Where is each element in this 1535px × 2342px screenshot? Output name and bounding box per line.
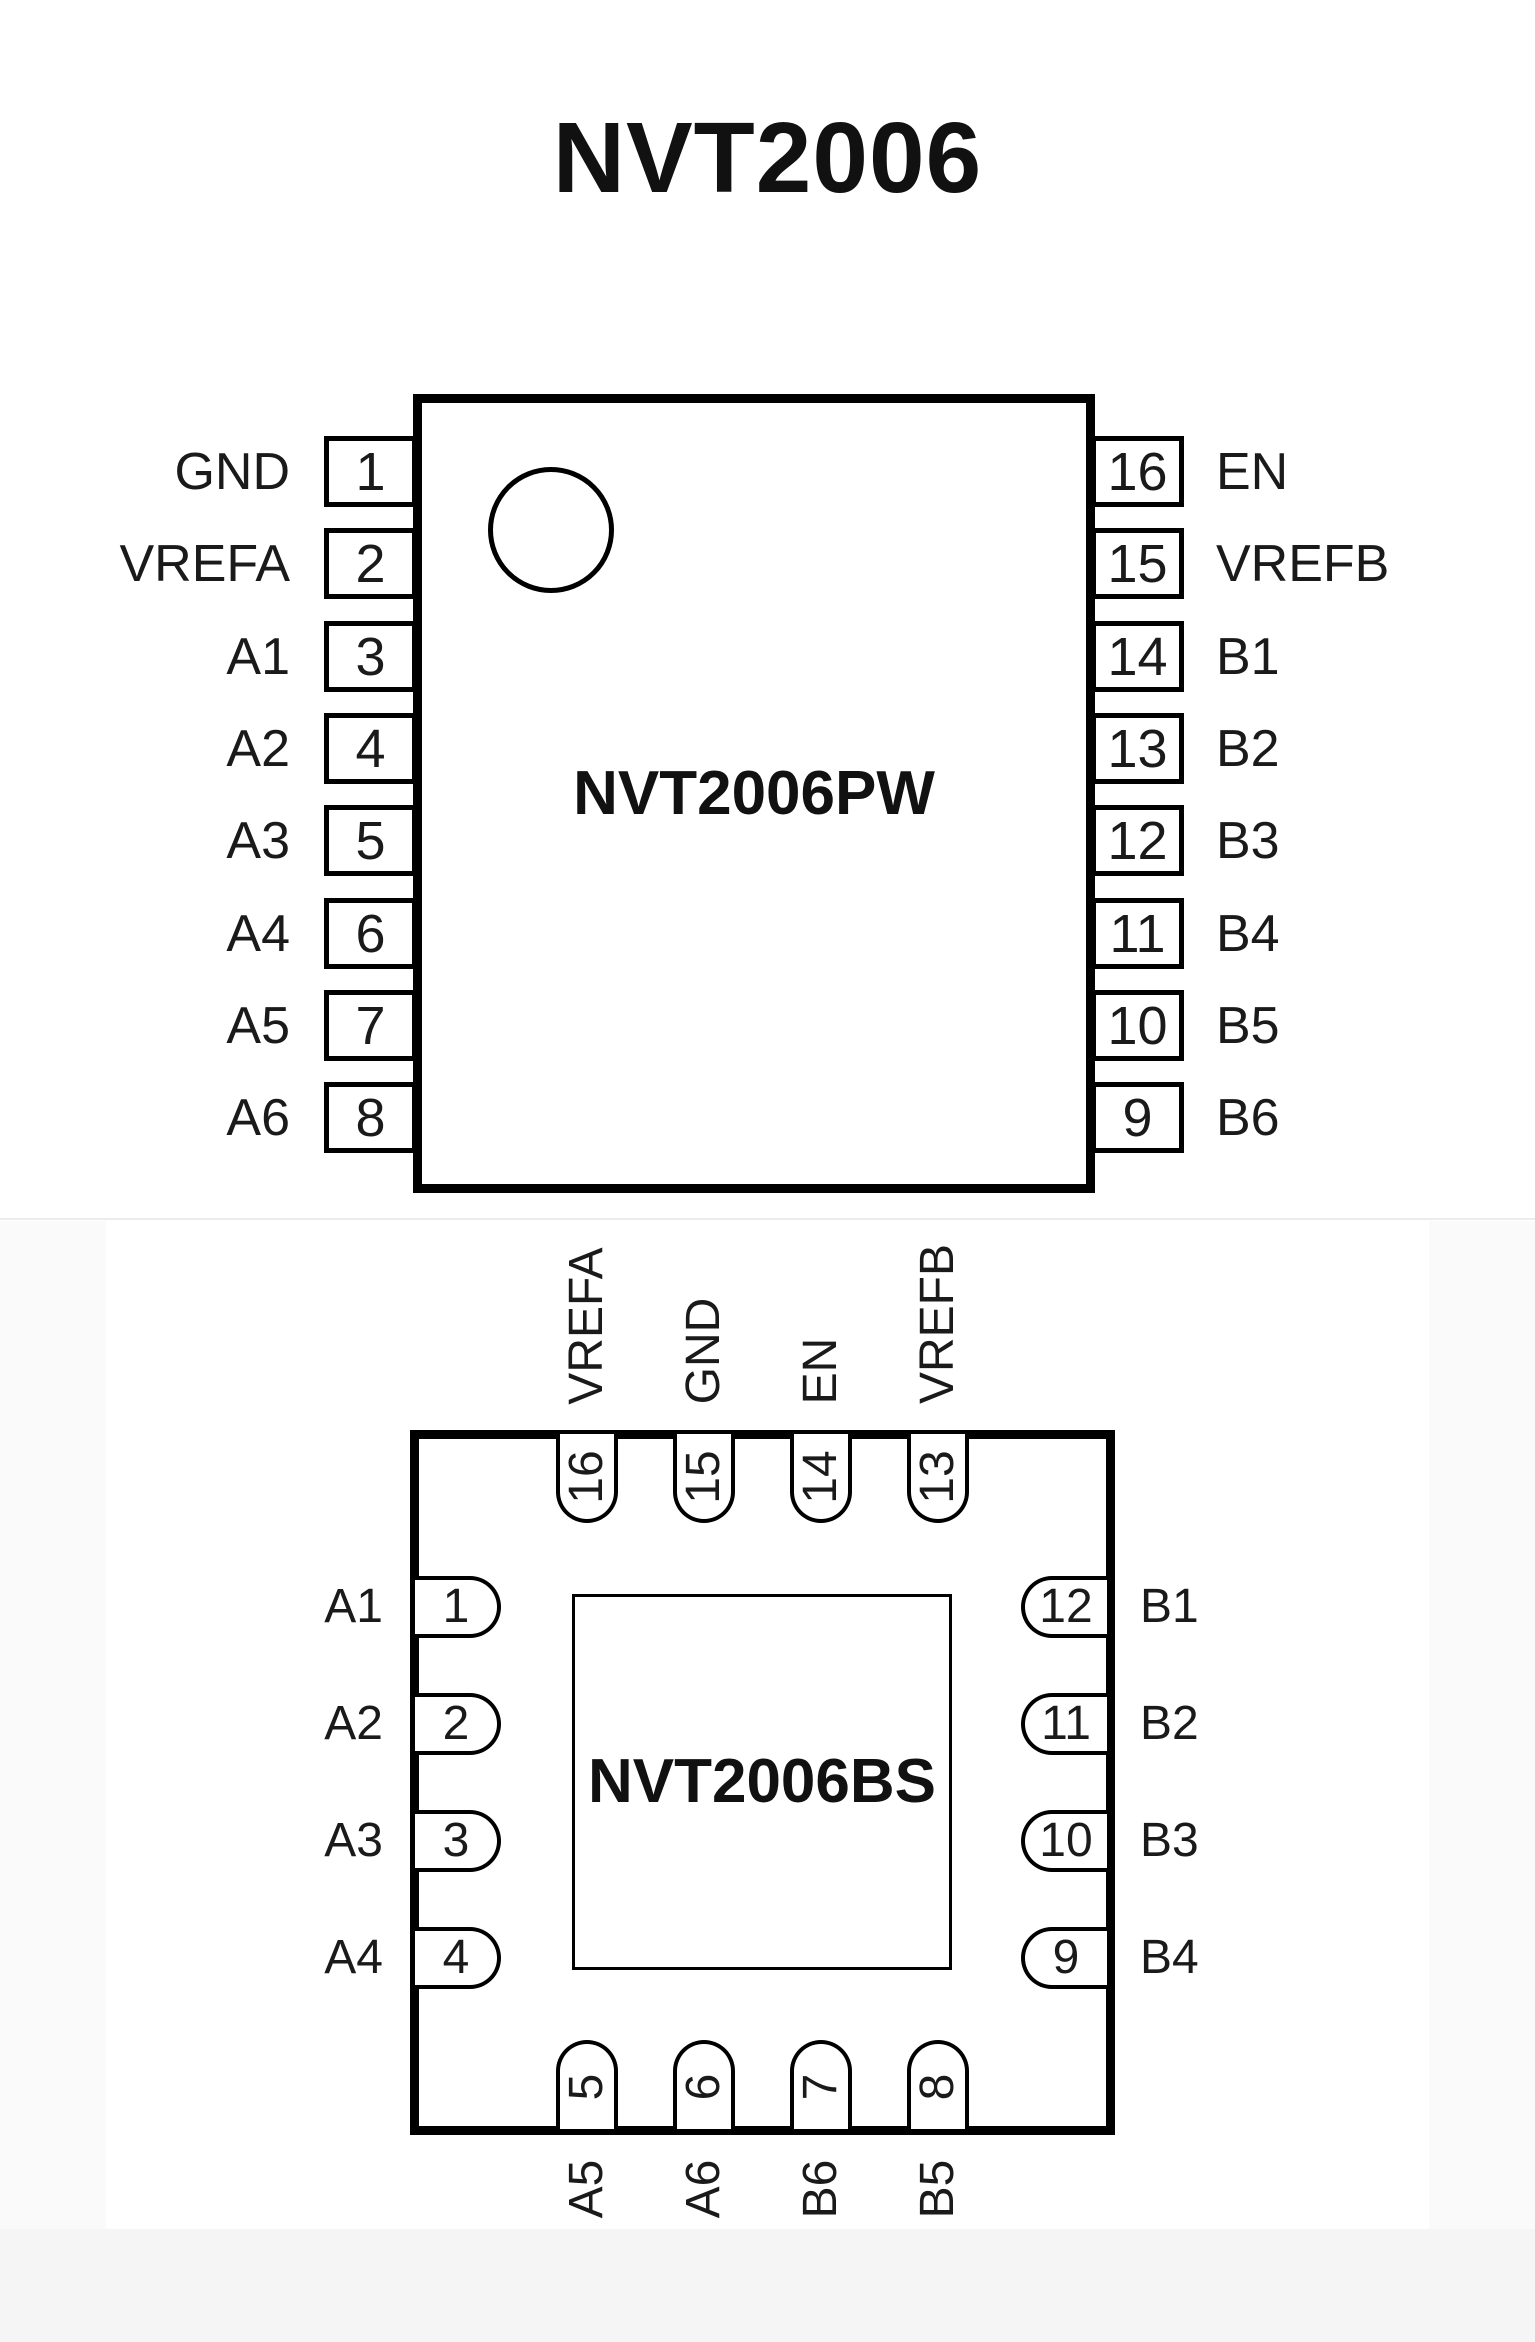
qfn-pin-1-label: A1	[324, 1576, 383, 1638]
tssop-pin-10-box: 10	[1091, 990, 1184, 1061]
datasheet-page: NVT2006 NVT2006PW 1GND2VREFA3A14A25A36A4…	[0, 0, 1535, 2342]
qfn-pin-6-label: A6	[680, 2159, 728, 2218]
qfn-pin-9-number: 9	[1053, 1934, 1080, 1982]
qfn-pin-3-pad: 3	[415, 1810, 501, 1872]
qfn-pin-1-pad: 1	[415, 1576, 501, 1638]
qfn-pin-3-number: 3	[443, 1817, 470, 1865]
tssop-pin-13-box: 13	[1091, 713, 1184, 784]
page-break-line	[0, 1218, 1535, 1220]
qfn-pin-14-label: EN	[797, 1337, 845, 1404]
qfn-pin-2-number: 2	[443, 1700, 470, 1748]
qfn-pin-2-pad: 2	[415, 1693, 501, 1755]
qfn-pin-8-label: B5	[914, 2159, 962, 2218]
tssop-package-name: NVT2006PW	[413, 394, 1095, 1193]
qfn-pin-10-pad: 10	[1021, 1810, 1107, 1872]
qfn-pin-4-pad: 4	[415, 1927, 501, 1989]
qfn-pin-15-number: 15	[680, 1450, 728, 1503]
tssop-pin-15-box: 15	[1091, 528, 1184, 599]
page-margin-right	[1429, 1221, 1535, 2229]
qfn-pin-6-number: 6	[680, 2073, 728, 2100]
tssop-pin-10-label: B5	[1216, 990, 1280, 1061]
tssop-pin-4-label: A2	[226, 713, 290, 784]
qfn-pin-9-pad: 9	[1021, 1927, 1107, 1989]
tssop-pin-2-box: 2	[324, 528, 417, 599]
qfn-pin-11-number: 11	[1041, 1700, 1091, 1748]
qfn-pin-10-number: 10	[1039, 1817, 1092, 1865]
tssop-pin-1-box: 1	[324, 436, 417, 507]
qfn-pin-14-number: 14	[797, 1450, 845, 1503]
tssop-pin-7-box: 7	[324, 990, 417, 1061]
qfn-pin-14-pad: 14	[790, 1434, 852, 1523]
qfn-pin-7-pad: 7	[790, 2040, 852, 2129]
qfn-pin-12-label: B1	[1140, 1576, 1199, 1638]
qfn-pin-4-number: 4	[443, 1934, 470, 1982]
tssop-pin-7-label: A5	[226, 990, 290, 1061]
qfn-pin-7-number: 7	[797, 2073, 845, 2100]
qfn-pin-5-label: A5	[563, 2159, 611, 2218]
qfn-pin-8-pad: 8	[907, 2040, 969, 2129]
qfn-pin-9-label: B4	[1140, 1927, 1199, 1989]
tssop-pin-5-box: 5	[324, 805, 417, 876]
qfn-package-name: NVT2006BS	[572, 1594, 952, 1970]
qfn-pin-13-label: VREFB	[914, 1244, 962, 1404]
qfn-pin-5-pad: 5	[556, 2040, 618, 2129]
page-title: NVT2006	[0, 108, 1535, 208]
qfn-pin-16-number: 16	[563, 1450, 611, 1503]
qfn-pin-10-label: B3	[1140, 1810, 1199, 1872]
qfn-pin-13-number: 13	[914, 1450, 962, 1503]
tssop-pin-9-label: B6	[1216, 1082, 1280, 1153]
qfn-pin-15-pad: 15	[673, 1434, 735, 1523]
qfn-pin-3-label: A3	[324, 1810, 383, 1872]
tssop-pin-14-label: B1	[1216, 621, 1280, 692]
tssop-pin-8-label: A6	[226, 1082, 290, 1153]
qfn-pin-13-pad: 13	[907, 1434, 969, 1523]
tssop-pin-11-box: 11	[1091, 898, 1184, 969]
qfn-pin-8-number: 8	[914, 2073, 962, 2100]
tssop-pin-8-box: 8	[324, 1082, 417, 1153]
qfn-pin-15-label: GND	[680, 1297, 728, 1404]
tssop-pin-5-label: A3	[226, 805, 290, 876]
qfn-pin-6-pad: 6	[673, 2040, 735, 2129]
qfn-pin-16-label: VREFA	[563, 1247, 611, 1404]
qfn-pin-11-pad: 11	[1021, 1693, 1107, 1755]
page-end-background	[0, 2229, 1535, 2342]
tssop-pin-2-label: VREFA	[120, 528, 291, 599]
qfn-pin-12-pad: 12	[1021, 1576, 1107, 1638]
qfn-pin-4-label: A4	[324, 1927, 383, 1989]
tssop-pin-6-box: 6	[324, 898, 417, 969]
tssop-pin-11-label: B4	[1216, 898, 1280, 969]
tssop-pin-4-box: 4	[324, 713, 417, 784]
qfn-pin-11-label: B2	[1140, 1693, 1199, 1755]
tssop-pin-6-label: A4	[226, 898, 290, 969]
tssop-pin-15-label: VREFB	[1216, 528, 1389, 599]
page-margin-left	[0, 1221, 106, 2229]
tssop-pin-16-label: EN	[1216, 436, 1288, 507]
qfn-pin-5-number: 5	[563, 2073, 611, 2100]
qfn-pin-1-number: 1	[443, 1583, 470, 1631]
tssop-pin-9-box: 9	[1091, 1082, 1184, 1153]
tssop-pin-14-box: 14	[1091, 621, 1184, 692]
tssop-pin-12-label: B3	[1216, 805, 1280, 876]
qfn-pin-2-label: A2	[324, 1693, 383, 1755]
tssop-pin-3-box: 3	[324, 621, 417, 692]
qfn-pin-16-pad: 16	[556, 1434, 618, 1523]
tssop-pin-12-box: 12	[1091, 805, 1184, 876]
qfn-pin-7-label: B6	[797, 2159, 845, 2218]
tssop-pin-1-label: GND	[174, 436, 290, 507]
tssop-pin-16-box: 16	[1091, 436, 1184, 507]
qfn-pin-12-number: 12	[1039, 1583, 1092, 1631]
tssop-pin-13-label: B2	[1216, 713, 1280, 784]
tssop-pin-3-label: A1	[226, 621, 290, 692]
